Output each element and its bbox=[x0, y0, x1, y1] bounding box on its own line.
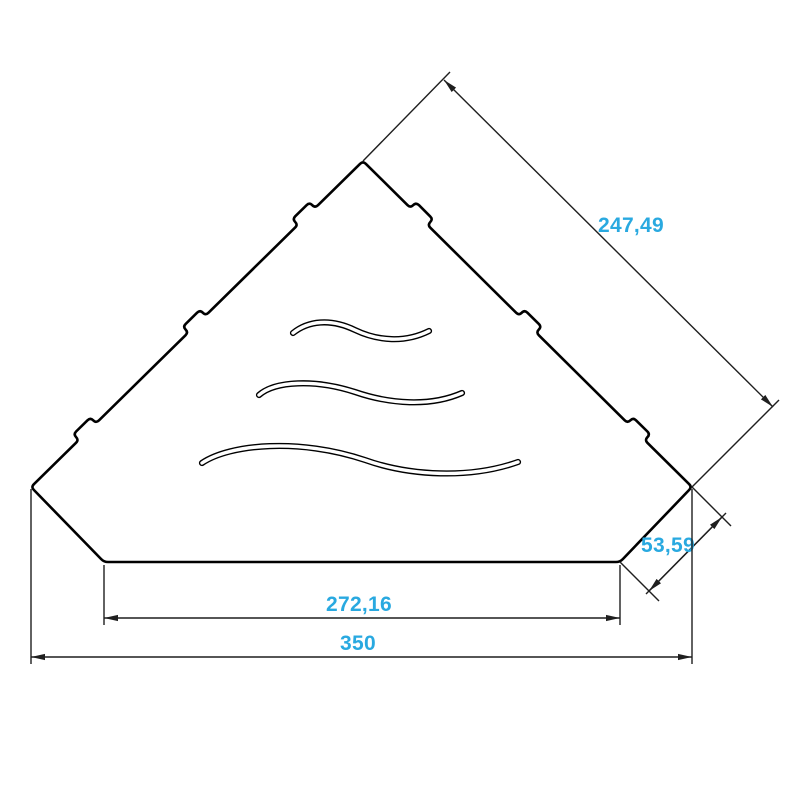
dimension-front-edge: 272,16 bbox=[104, 565, 620, 625]
dimension-label-front-edge: 272,16 bbox=[326, 593, 392, 616]
shelf-shape bbox=[32, 162, 690, 562]
technical-drawing: 247,49 53,59 272,16 350 bbox=[0, 0, 800, 800]
extension-line bbox=[620, 562, 659, 601]
extension-line bbox=[363, 72, 450, 161]
shelf-outline bbox=[32, 162, 690, 562]
dimension-label-overall-width: 350 bbox=[340, 632, 376, 655]
extension-line bbox=[692, 400, 779, 487]
extension-line bbox=[692, 487, 731, 526]
drawing-canvas: 247,49 53,59 272,16 350 bbox=[0, 0, 800, 800]
dimension-label-corner-cut: 53,59 bbox=[641, 534, 695, 557]
dimension-label-side-edge: 247,49 bbox=[598, 214, 664, 237]
